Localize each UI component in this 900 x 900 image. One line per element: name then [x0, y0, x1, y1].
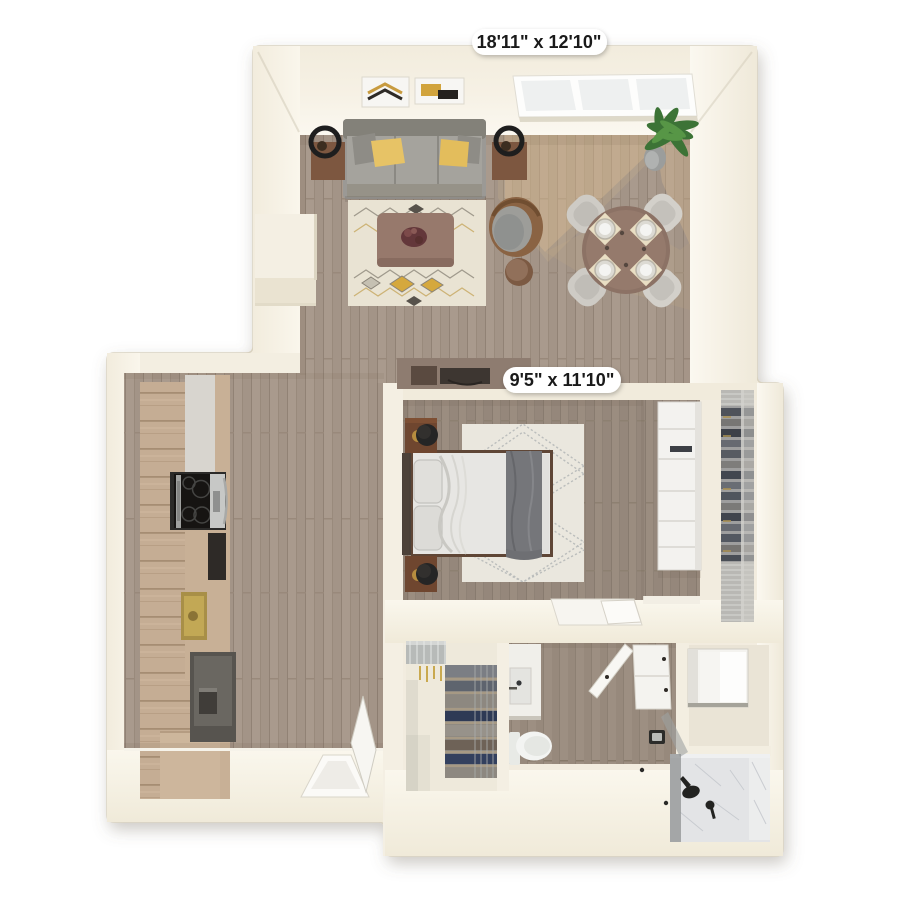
svg-text:9'5" x 11'10": 9'5" x 11'10"	[510, 370, 615, 390]
svg-text:18'11" x 12'10": 18'11" x 12'10"	[477, 32, 602, 52]
